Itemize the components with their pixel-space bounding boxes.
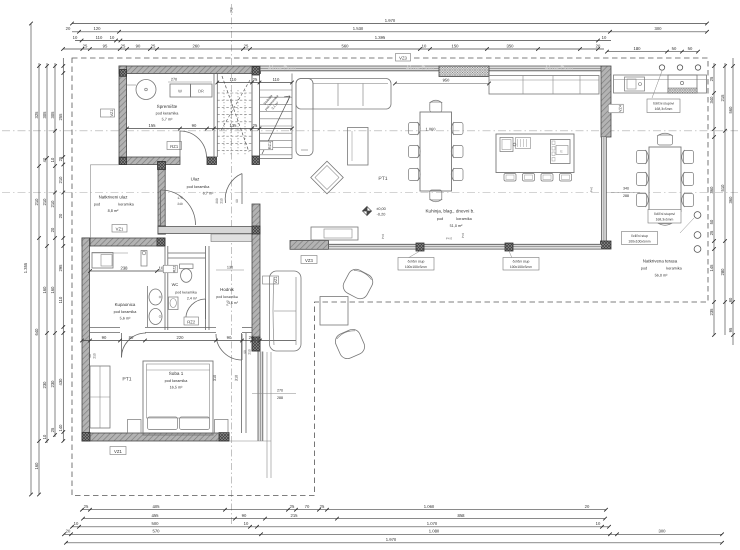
svg-text:235: 235 [709, 308, 714, 316]
svg-text:čelični stup: čelični stup [408, 260, 425, 264]
svg-text:25: 25 [253, 123, 258, 128]
svg-text:PT1: PT1 [122, 377, 131, 383]
svg-text:80: 80 [728, 297, 733, 302]
svg-text:P2: P2 [229, 7, 234, 13]
svg-text:DR: DR [198, 89, 204, 94]
svg-text:Natkrivena terasa: Natkrivena terasa [643, 259, 678, 264]
svg-text:1.395: 1.395 [375, 35, 386, 40]
svg-text:Natkriveni ulaz: Natkriveni ulaz [99, 195, 128, 200]
svg-text:90: 90 [242, 513, 247, 518]
svg-text:90: 90 [136, 43, 141, 48]
svg-text:340: 340 [709, 96, 714, 104]
svg-text:10: 10 [50, 157, 55, 162]
svg-text:360: 360 [709, 186, 714, 194]
svg-text:510: 510 [720, 184, 725, 192]
svg-text:570: 570 [153, 529, 161, 534]
svg-text:Spremište: Spremište [157, 104, 178, 109]
svg-text:230: 230 [50, 380, 55, 388]
svg-text:10: 10 [42, 434, 47, 439]
svg-text:100x100x5mm: 100x100x5mm [628, 240, 650, 244]
svg-text:1.970: 1.970 [385, 18, 396, 23]
svg-text:keramika: keramika [118, 203, 134, 207]
svg-text:560: 560 [728, 106, 733, 114]
svg-text:P+0: P+0 [590, 186, 594, 192]
svg-text:25: 25 [709, 230, 714, 235]
svg-text:130: 130 [227, 266, 233, 270]
svg-text:20: 20 [66, 529, 71, 534]
svg-text:8,8 m²: 8,8 m² [108, 209, 119, 213]
svg-text:160: 160 [34, 462, 39, 470]
svg-text:RZ1: RZ1 [268, 142, 272, 149]
svg-text:P+0: P+0 [381, 233, 385, 239]
svg-text:325: 325 [34, 111, 39, 119]
svg-text:pod keramika: pod keramika [187, 185, 211, 189]
svg-text:270: 270 [277, 389, 283, 393]
svg-text:90: 90 [235, 199, 239, 203]
svg-text:10: 10 [244, 521, 249, 526]
svg-text:čelični stup: čelični stup [513, 260, 530, 264]
svg-text:288: 288 [623, 194, 629, 198]
svg-text:168,3x5mm: 168,3x5mm [656, 218, 674, 222]
svg-text:210: 210 [58, 176, 63, 184]
svg-text:10: 10 [422, 43, 427, 48]
svg-text:25: 25 [84, 504, 89, 509]
svg-text:120: 120 [94, 26, 102, 31]
svg-text:25: 25 [121, 43, 126, 48]
svg-text:čelični stup: čelični stup [631, 234, 648, 238]
svg-text:25: 25 [151, 43, 156, 48]
svg-text:210: 210 [248, 349, 252, 355]
svg-text:160: 160 [50, 286, 55, 294]
svg-text:1.970: 1.970 [386, 537, 397, 542]
svg-text:pod keramika: pod keramika [216, 295, 238, 299]
svg-text:pod: pod [641, 267, 647, 271]
svg-text:95: 95 [728, 327, 733, 332]
svg-text:300: 300 [659, 529, 667, 534]
svg-text:RZ2: RZ2 [187, 319, 196, 324]
svg-text:295: 295 [58, 264, 63, 272]
svg-text:1.530: 1.530 [353, 26, 364, 31]
svg-text:25: 25 [50, 427, 55, 432]
svg-text:Alma Dom: Alma Dom [268, 65, 297, 72]
svg-text:20: 20 [585, 504, 590, 509]
svg-text:keramika: keramika [666, 267, 682, 271]
svg-text:51,0 m²: 51,0 m² [450, 224, 464, 228]
svg-text:430: 430 [58, 378, 63, 386]
svg-text:950: 950 [443, 78, 450, 83]
svg-text:110: 110 [96, 35, 103, 40]
svg-text:10: 10 [74, 521, 79, 526]
svg-text:210: 210 [34, 198, 39, 206]
svg-text:10: 10 [596, 521, 601, 526]
svg-text:175: 175 [177, 196, 183, 200]
svg-text:1.080: 1.080 [429, 529, 440, 534]
svg-text:40: 40 [42, 157, 47, 162]
svg-text:80: 80 [129, 335, 134, 340]
svg-text:Alma Dom: Alma Dom [406, 65, 435, 72]
svg-text:10: 10 [110, 35, 115, 40]
svg-text:455: 455 [152, 513, 160, 518]
svg-text:310: 310 [213, 375, 217, 381]
svg-text:P4 0: P4 0 [446, 237, 453, 241]
svg-text:VZ3: VZ3 [305, 258, 313, 263]
svg-text:210: 210 [42, 198, 47, 206]
svg-text:RZ2: RZ2 [173, 266, 177, 273]
svg-text:6,7 m²: 6,7 m² [203, 192, 214, 196]
svg-text:20: 20 [58, 213, 63, 218]
svg-text:70: 70 [305, 504, 310, 509]
svg-text:210: 210 [93, 353, 97, 359]
svg-text:100x100x5mm: 100x100x5mm [510, 265, 532, 269]
svg-text:640: 640 [34, 328, 39, 336]
svg-text:pod keramika: pod keramika [165, 379, 189, 383]
svg-text:pod keramika: pod keramika [156, 112, 180, 116]
svg-text:210: 210 [50, 200, 55, 208]
svg-text:160: 160 [42, 286, 47, 294]
svg-text:305: 305 [50, 111, 55, 119]
svg-text:25: 25 [253, 77, 258, 82]
svg-text:pod keramika: pod keramika [114, 310, 138, 314]
svg-text:90: 90 [192, 123, 197, 128]
svg-text:90: 90 [227, 335, 232, 340]
svg-text:238: 238 [121, 265, 129, 270]
svg-text:135: 135 [230, 123, 238, 128]
svg-text:25: 25 [320, 504, 325, 509]
svg-text:110: 110 [230, 77, 237, 82]
svg-text:Soba 1: Soba 1 [169, 371, 184, 376]
svg-text:25: 25 [290, 504, 295, 509]
svg-text:VZ1: VZ1 [114, 449, 122, 454]
svg-text:WC: WC [172, 282, 179, 287]
svg-text:50: 50 [709, 219, 714, 224]
svg-text:1.060: 1.060 [425, 127, 436, 132]
svg-text:300: 300 [655, 26, 663, 31]
svg-text:560: 560 [342, 43, 350, 48]
svg-text:25: 25 [244, 43, 249, 48]
svg-text:20: 20 [249, 335, 254, 340]
svg-text:Kupaonica: Kupaonica [115, 302, 136, 307]
svg-text:čelični stupovi: čelični stupovi [653, 102, 674, 106]
svg-text:155: 155 [149, 123, 157, 128]
svg-text:P+0: P+0 [226, 300, 230, 306]
svg-text:145: 145 [709, 264, 714, 272]
svg-text:90: 90 [243, 350, 247, 354]
svg-text:5,6 m²: 5,6 m² [120, 317, 131, 321]
svg-text:305: 305 [42, 111, 47, 119]
svg-text:90: 90 [88, 354, 92, 358]
svg-text:340: 340 [623, 187, 629, 191]
svg-text:1.070: 1.070 [427, 521, 438, 526]
svg-text:10: 10 [73, 35, 78, 40]
svg-text:VZ1: VZ1 [110, 110, 114, 117]
svg-text:255: 255 [58, 113, 63, 121]
svg-text:VZ1: VZ1 [116, 226, 124, 231]
svg-text:90: 90 [102, 335, 107, 340]
svg-text:180: 180 [634, 46, 642, 51]
svg-text:405: 405 [153, 504, 161, 509]
svg-text:keramika: keramika [456, 217, 472, 221]
svg-text:čelični stupovi: čelični stupovi [654, 212, 675, 216]
svg-text:858: 858 [458, 513, 466, 518]
svg-text:pod keramika: pod keramika [175, 291, 197, 295]
svg-text:25: 25 [58, 156, 63, 161]
svg-text:280: 280 [720, 268, 725, 276]
svg-text:W: W [178, 89, 182, 94]
svg-text:-0,20: -0,20 [377, 213, 386, 217]
svg-text:16,5 m²: 16,5 m² [170, 386, 184, 390]
svg-text:56,0 m²: 56,0 m² [655, 274, 669, 278]
svg-text:110: 110 [273, 77, 280, 82]
svg-text:5,7 m²: 5,7 m² [162, 118, 173, 122]
svg-text:VZ4: VZ4 [619, 105, 623, 112]
svg-text:20: 20 [50, 227, 55, 232]
svg-text:1.355: 1.355 [23, 262, 28, 273]
svg-text:RZ1: RZ1 [170, 144, 179, 149]
svg-text:270: 270 [171, 78, 177, 82]
svg-text:230: 230 [42, 381, 47, 389]
svg-text:3,6 m²: 3,6 m² [228, 301, 239, 305]
svg-text:10: 10 [602, 35, 607, 40]
svg-text:20: 20 [596, 43, 601, 48]
svg-text:PT1: PT1 [378, 176, 387, 182]
svg-text:pod: pod [437, 217, 443, 221]
svg-text:100x100x5mm: 100x100x5mm [405, 265, 427, 269]
svg-text:168,3x5mm: 168,3x5mm [655, 107, 673, 111]
svg-text:288: 288 [277, 396, 283, 400]
svg-text:210: 210 [220, 198, 224, 204]
svg-text:pod: pod [94, 203, 100, 207]
svg-text:2,4 m²: 2,4 m² [187, 297, 198, 301]
svg-text:360: 360 [728, 196, 733, 204]
svg-text:Ulaz: Ulaz [191, 177, 200, 182]
svg-text:50: 50 [672, 46, 677, 51]
svg-text:260: 260 [193, 43, 201, 48]
svg-text:220: 220 [177, 335, 185, 340]
svg-text:140: 140 [58, 424, 63, 432]
svg-text:200: 200 [215, 198, 219, 204]
svg-text:VZ3: VZ3 [399, 55, 407, 60]
svg-text:Kuhinja, blag., dnevni b.: Kuhinja, blag., dnevni b. [425, 209, 474, 214]
svg-text:Hodnik: Hodnik [220, 287, 234, 292]
svg-text:95: 95 [103, 43, 108, 48]
svg-text:500: 500 [152, 521, 160, 526]
svg-text:110: 110 [58, 296, 63, 303]
svg-text:150: 150 [452, 43, 460, 48]
svg-text:±0,00: ±0,00 [376, 207, 385, 211]
svg-text:20: 20 [66, 26, 71, 31]
svg-text:25: 25 [709, 76, 714, 81]
svg-text:50: 50 [688, 46, 693, 51]
svg-text:25: 25 [83, 43, 88, 48]
svg-text:350: 350 [507, 43, 515, 48]
svg-text:310: 310 [235, 375, 239, 381]
svg-text:215: 215 [291, 513, 299, 518]
svg-text:VZ1: VZ1 [274, 277, 278, 284]
svg-text:1.060: 1.060 [424, 504, 435, 509]
svg-text:240: 240 [177, 202, 183, 206]
svg-text:P+0: P+0 [461, 232, 465, 238]
svg-text:Alma Dom: Alma Dom [545, 65, 574, 72]
svg-text:215: 215 [720, 94, 725, 102]
